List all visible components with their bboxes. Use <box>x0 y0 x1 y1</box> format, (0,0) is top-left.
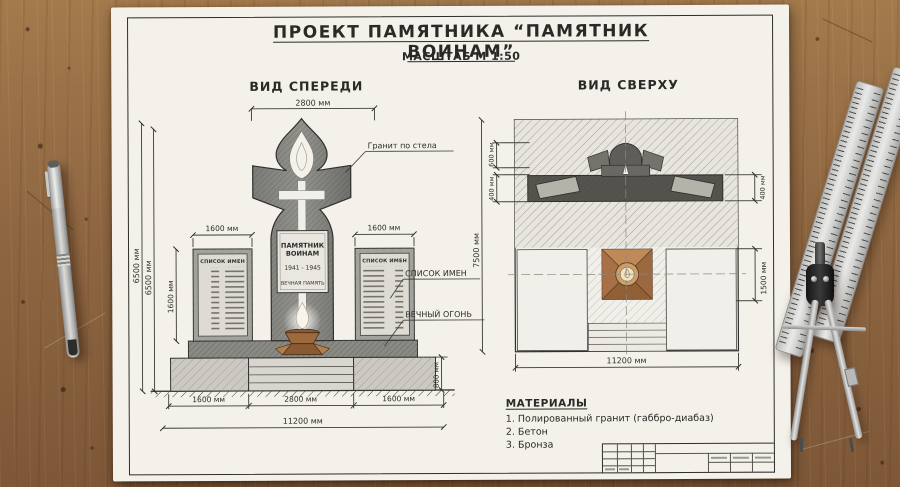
svg-text:1600 мм: 1600 мм <box>368 223 401 232</box>
plan-steps <box>588 323 666 351</box>
materials-header: МАТЕРИАЛЫ <box>506 397 714 410</box>
svg-text:6500 мм: 6500 мм <box>132 248 141 283</box>
callout-names: СПИСОК ИМЕН <box>405 269 467 278</box>
memorial-plaque: ПАМЯТНИК ВОИНАМ 1941 - 1945 ВЕЧНАЯ ПАМЯТ… <box>277 231 328 293</box>
front-view-drawing: СПИСОК ИМЕН СПИСОК ИМЕН <box>131 96 475 443</box>
svg-text:6500 мм: 6500 мм <box>144 260 153 295</box>
title-block-stamp <box>602 443 775 474</box>
svg-text:1500 мм: 1500 мм <box>759 262 768 295</box>
svg-text:1600 мм: 1600 мм <box>166 280 175 313</box>
svg-text:7500 мм: 7500 мм <box>472 233 481 268</box>
compass-knob <box>815 242 825 266</box>
name-list-header: СПИСОК ИМЕН <box>362 258 407 264</box>
pen-cap <box>47 162 65 209</box>
pen-tip <box>67 339 78 356</box>
cross-bar <box>279 191 325 200</box>
plaque-years: 1941 - 1945 <box>284 265 321 272</box>
svg-text:2800 мм: 2800 мм <box>284 395 317 404</box>
svg-text:1600 мм: 1600 мм <box>382 394 415 403</box>
drafting-compass <box>770 238 900 448</box>
compass-screw <box>811 276 817 282</box>
name-list-header: СПИСОК ИМЕН <box>200 259 245 265</box>
name-list-rows <box>201 267 244 332</box>
svg-text:400 мм: 400 мм <box>759 175 767 199</box>
base-blocks <box>171 357 436 391</box>
svg-text:11200 мм: 11200 мм <box>283 417 323 426</box>
top-view-drawing: 7500 мм 600 мм 400 мм 400 мм 1500 мм 112… <box>469 105 780 390</box>
compass-crossbar <box>782 325 866 332</box>
wood-scratch <box>822 18 872 42</box>
left-stele: СПИСОК ИМЕН <box>193 249 252 341</box>
drawing-scale: МАСШТАБ М 1:50 <box>231 49 691 64</box>
svg-text:11200 мм: 11200 мм <box>606 356 646 365</box>
top-view-label: ВИД СВЕРХУ <box>563 77 693 93</box>
svg-text:2800 мм: 2800 мм <box>295 99 330 108</box>
steps-front <box>248 357 353 390</box>
right-stele: СПИСОК ИМЕН <box>355 248 414 340</box>
svg-text:600 мм: 600 мм <box>488 142 496 166</box>
pen <box>47 162 80 358</box>
plan-right-slab <box>666 249 736 350</box>
compass-tip <box>849 438 854 452</box>
compass-tip <box>800 438 803 452</box>
svg-text:1600 мм: 1600 мм <box>192 395 225 404</box>
name-list-rows <box>363 266 406 331</box>
svg-text:400 мм: 400 мм <box>488 176 496 200</box>
pen-rings <box>56 253 70 266</box>
compass-leg-left <box>790 299 819 440</box>
material-item: 1. Полированный гранит (габбро-диабаз) <box>506 412 714 426</box>
plaque-line1: ПАМЯТНИК <box>281 242 325 250</box>
compass-screw <box>823 276 829 282</box>
blueprint-paper: ПРОЕКТ ПАМЯТНИКА “ПАМЯТНИК ВОИНАМ” МАСШТ… <box>111 5 791 482</box>
plaque-line2: ВОИНАМ <box>286 250 319 258</box>
photo-drafting-desk: ПРОЕКТ ПАМЯТНИКА “ПАМЯТНИК ВОИНАМ” МАСШТ… <box>0 0 900 487</box>
plan-left-slab <box>517 249 587 350</box>
svg-text:800 мм: 800 мм <box>433 362 441 388</box>
plaque-memory: ВЕЧНАЯ ПАМЯТЬ <box>281 281 325 287</box>
svg-text:1600 мм: 1600 мм <box>206 224 239 233</box>
callout-flame: ВЕЧНЫЙ ОГОНЬ <box>405 308 472 319</box>
front-view-label: ВИД СПЕРЕДИ <box>241 78 371 94</box>
material-item: 2. Бетон <box>506 425 714 439</box>
callout-granite: Гранит по стела <box>368 141 437 150</box>
